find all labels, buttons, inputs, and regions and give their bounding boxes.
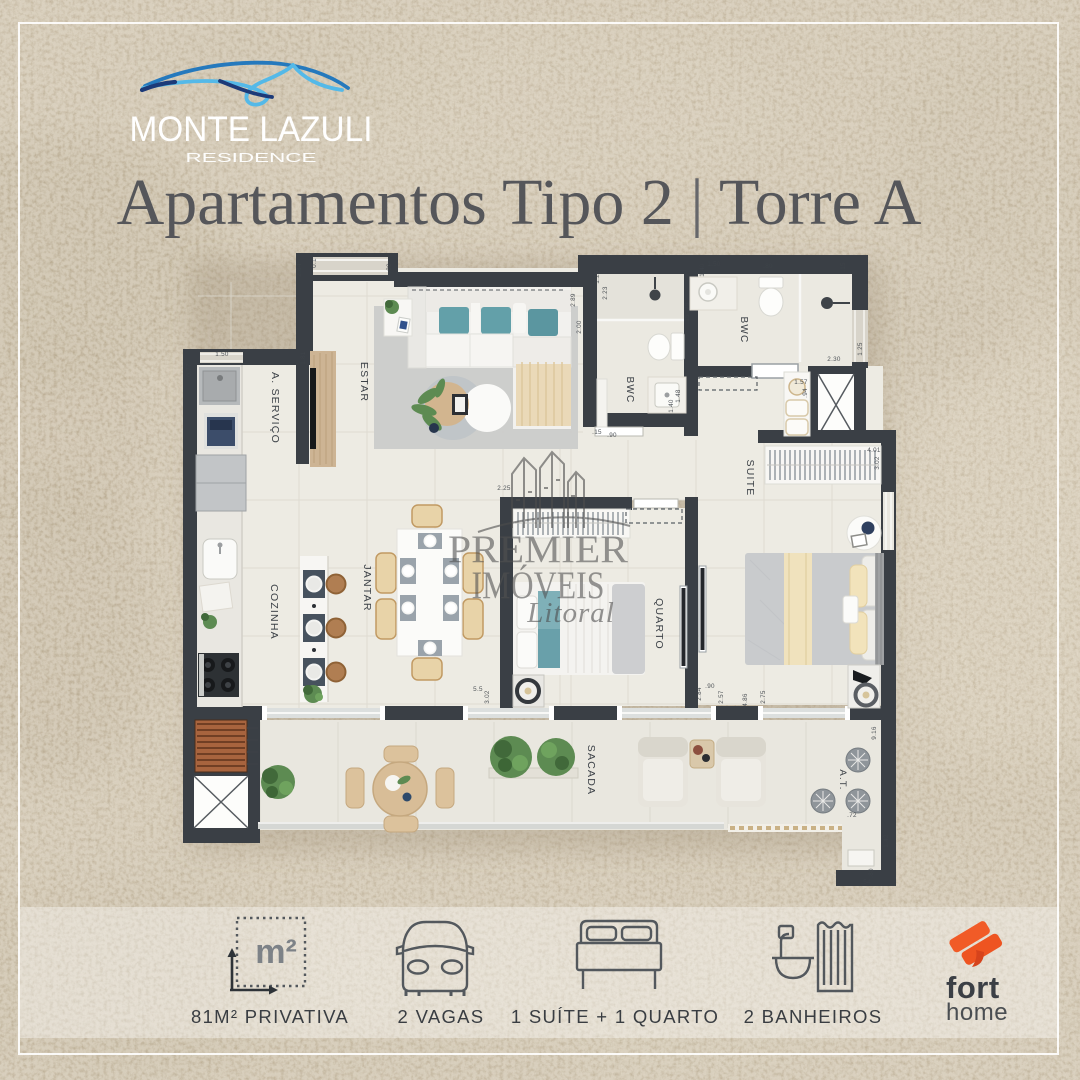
svg-text:1 SUÍTE + 1 QUARTO: 1 SUÍTE + 1 QUARTO — [511, 1006, 719, 1027]
svg-text:2 VAGAS: 2 VAGAS — [398, 1006, 485, 1027]
svg-text:home: home — [946, 999, 1008, 1026]
svg-text:m²: m² — [255, 933, 297, 971]
svg-text:2 BANHEIROS: 2 BANHEIROS — [744, 1006, 883, 1027]
svg-text:81M² PRIVATIVA: 81M² PRIVATIVA — [191, 1006, 349, 1027]
